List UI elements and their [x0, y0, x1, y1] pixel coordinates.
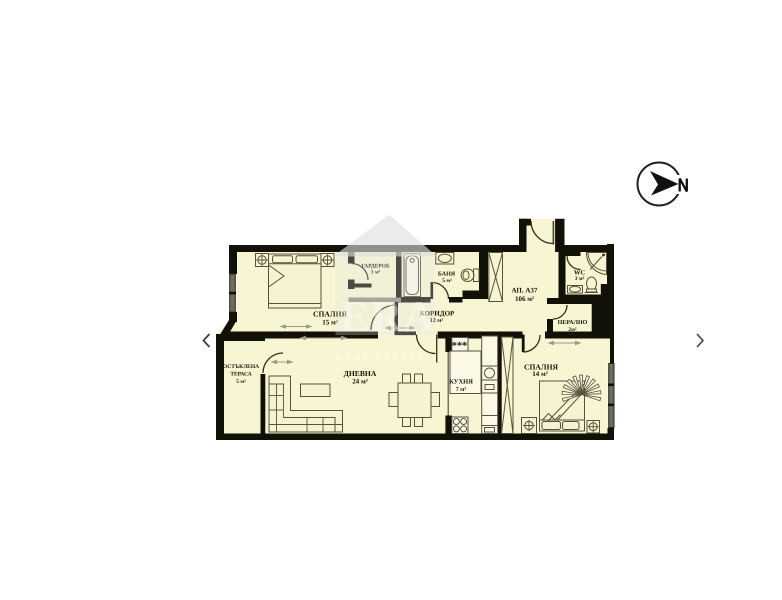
svg-text:ОСТЪКЛЕНА: ОСТЪКЛЕНА [223, 364, 259, 370]
svg-text:24 м²: 24 м² [352, 378, 368, 386]
svg-text:БАНЯ: БАНЯ [438, 272, 456, 278]
svg-text:КУХНЯ: КУХНЯ [449, 379, 473, 386]
svg-text:5 м²: 5 м² [236, 379, 246, 385]
svg-text:7 м²: 7 м² [456, 387, 467, 393]
svg-text:ПЕРАЛНО: ПЕРАЛНО [558, 320, 588, 326]
svg-text:ТЕРАСА: ТЕРАСА [230, 372, 251, 378]
svg-text:106 м²: 106 м² [515, 295, 534, 303]
svg-text:3 м²: 3 м² [575, 276, 585, 282]
svg-text:АП. А37: АП. А37 [512, 287, 538, 295]
svg-text:REAL ESTATE: REAL ESTATE [336, 353, 427, 363]
svg-text:14 м²: 14 м² [532, 370, 548, 378]
svg-text:ERA: ERA [340, 292, 436, 341]
svg-text:*: * [462, 340, 468, 352]
svg-text:5 м²: 5 м² [442, 278, 452, 284]
svg-text:15 м²: 15 м² [322, 319, 338, 327]
svg-text:2м²: 2м² [568, 327, 576, 333]
